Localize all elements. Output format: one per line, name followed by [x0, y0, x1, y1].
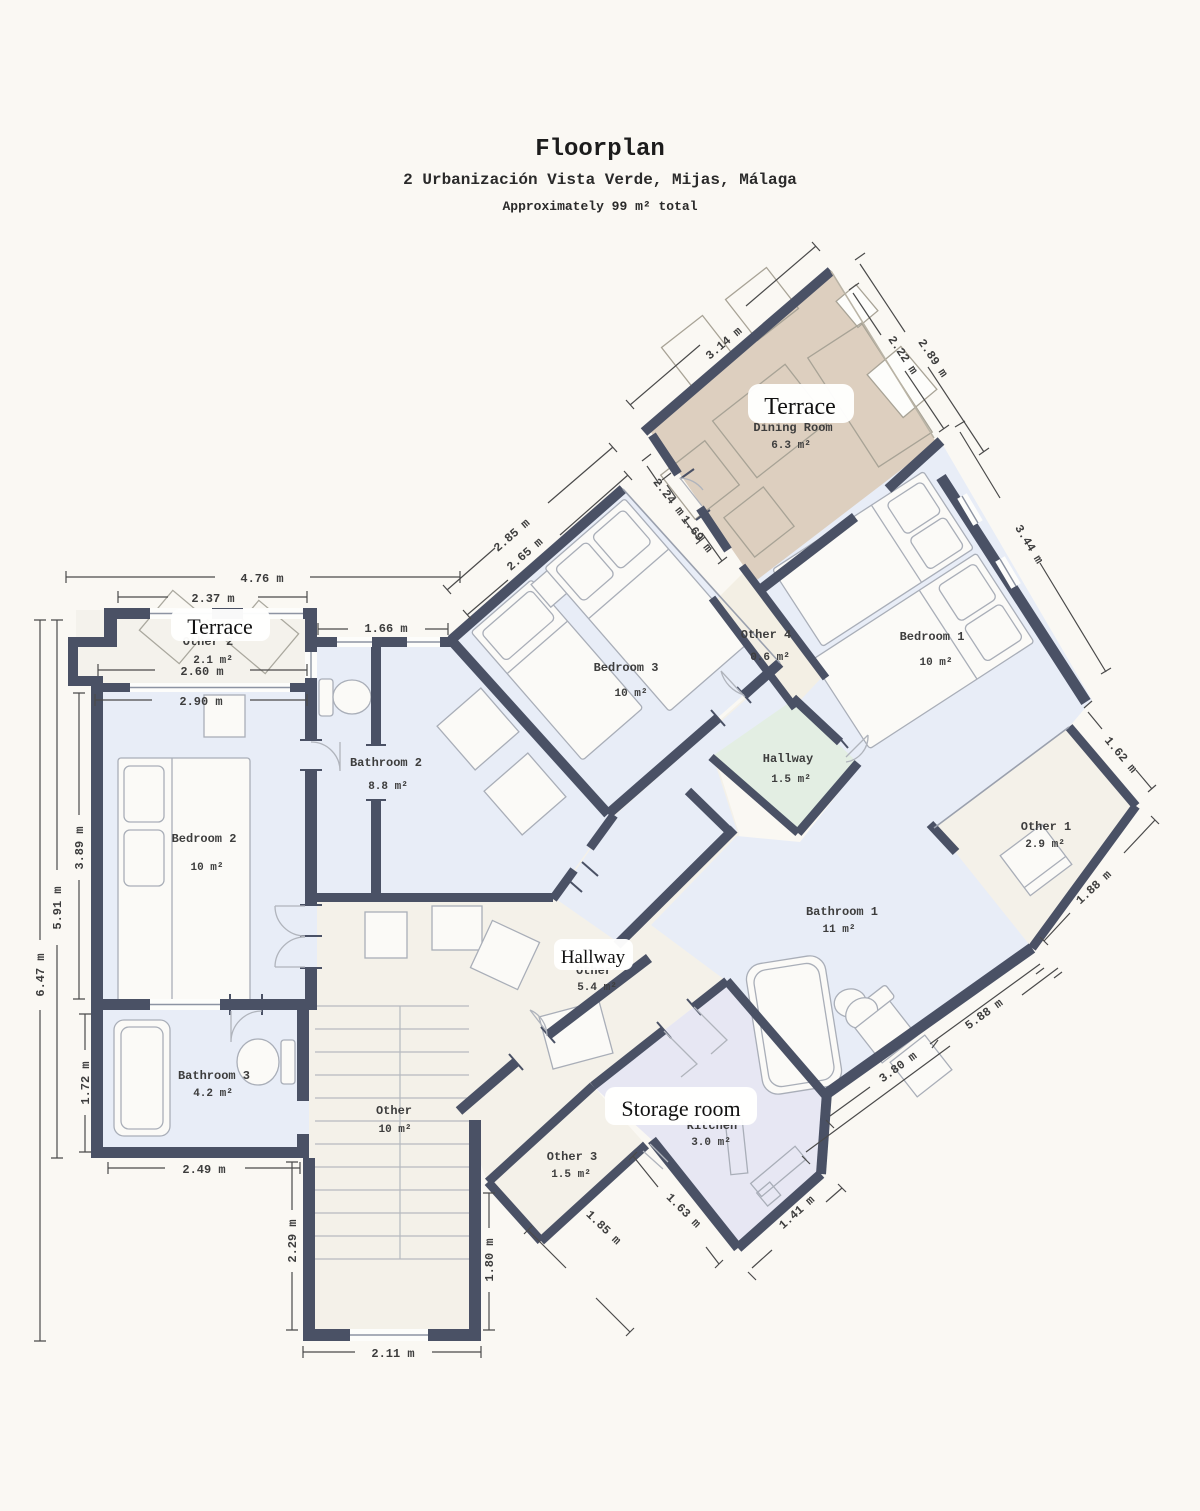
- svg-text:2.9 m²: 2.9 m²: [1025, 839, 1065, 851]
- svg-text:5.91 m: 5.91 m: [51, 886, 65, 929]
- svg-text:5.4 m²: 5.4 m²: [577, 982, 617, 994]
- svg-text:2.37 m: 2.37 m: [191, 592, 234, 606]
- svg-text:Terrace: Terrace: [187, 614, 253, 639]
- svg-text:0.6 m²: 0.6 m²: [750, 652, 790, 664]
- svg-text:Other 1: Other 1: [1021, 820, 1071, 834]
- svg-text:1.5 m²: 1.5 m²: [551, 1169, 591, 1181]
- svg-text:1.80 m: 1.80 m: [483, 1238, 497, 1281]
- svg-text:10 m²: 10 m²: [378, 1124, 411, 1136]
- svg-text:8.8 m²: 8.8 m²: [368, 781, 408, 793]
- svg-text:Bedroom 1: Bedroom 1: [900, 630, 965, 644]
- svg-text:10 m²: 10 m²: [190, 862, 223, 874]
- svg-text:Other: Other: [376, 1104, 412, 1118]
- svg-text:2.24 m: 2.24 m: [650, 476, 688, 519]
- svg-text:Dining Room: Dining Room: [753, 421, 832, 435]
- svg-text:11 m²: 11 m²: [822, 924, 855, 936]
- svg-text:2.29 m: 2.29 m: [286, 1219, 300, 1262]
- svg-text:Bathroom 3: Bathroom 3: [178, 1069, 250, 1083]
- svg-text:Bedroom 3: Bedroom 3: [594, 661, 659, 675]
- svg-text:6.47 m: 6.47 m: [34, 953, 48, 996]
- svg-text:Bathroom 1: Bathroom 1: [806, 905, 878, 919]
- svg-text:10 m²: 10 m²: [919, 657, 952, 669]
- svg-text:Terrace: Terrace: [764, 394, 836, 420]
- svg-text:1.5 m²: 1.5 m²: [771, 774, 811, 786]
- svg-text:2.49 m: 2.49 m: [182, 1163, 225, 1177]
- svg-text:Other 4: Other 4: [741, 628, 791, 642]
- svg-text:2.90 m: 2.90 m: [179, 695, 222, 709]
- svg-text:4.76 m: 4.76 m: [240, 572, 283, 586]
- svg-text:Storage room: Storage room: [621, 1096, 740, 1121]
- svg-text:Bathroom 2: Bathroom 2: [350, 756, 422, 770]
- svg-text:3.0 m²: 3.0 m²: [691, 1137, 731, 1149]
- svg-text:2.11 m: 2.11 m: [371, 1347, 414, 1361]
- svg-text:2.1 m²: 2.1 m²: [193, 655, 233, 667]
- svg-text:4.2 m²: 4.2 m²: [193, 1088, 233, 1100]
- svg-text:10 m²: 10 m²: [614, 688, 647, 700]
- svg-text:1.85 m: 1.85 m: [583, 1208, 624, 1248]
- svg-text:1.72 m: 1.72 m: [79, 1061, 93, 1104]
- svg-text:5.88 m: 5.88 m: [963, 996, 1006, 1033]
- svg-text:Hallway: Hallway: [763, 752, 813, 766]
- svg-text:2.60 m: 2.60 m: [180, 665, 223, 679]
- svg-text:3.44 m: 3.44 m: [1011, 522, 1046, 566]
- svg-text:Other 3: Other 3: [547, 1150, 597, 1164]
- svg-text:6.3 m²: 6.3 m²: [771, 440, 811, 452]
- svg-text:Bedroom 2: Bedroom 2: [172, 832, 237, 846]
- svg-text:1.66 m: 1.66 m: [364, 622, 407, 636]
- svg-text:3.89 m: 3.89 m: [73, 826, 87, 869]
- svg-text:Hallway: Hallway: [561, 947, 626, 968]
